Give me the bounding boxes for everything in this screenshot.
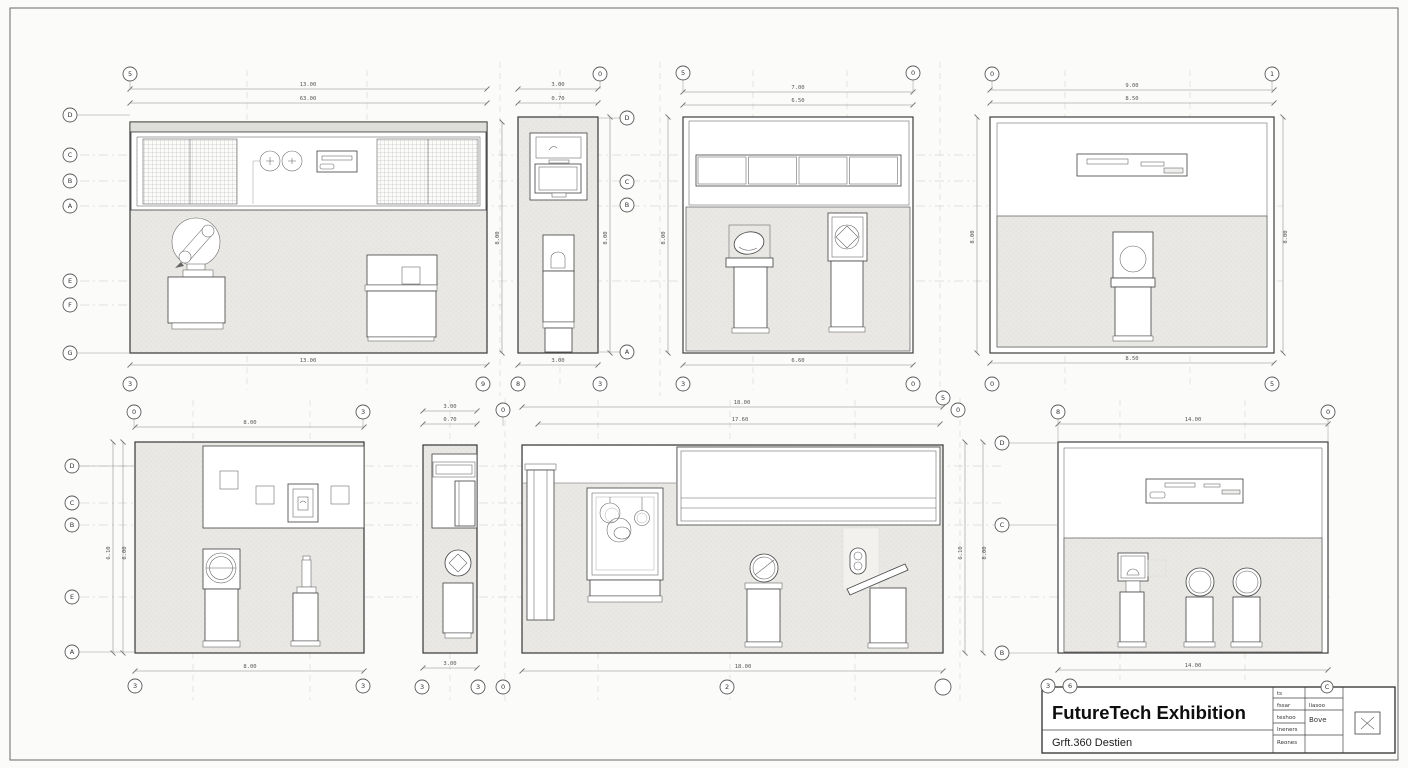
dim-label: 9.00: [1125, 83, 1138, 89]
grid-bubble-label: D: [624, 114, 629, 122]
grid-bubble: 3: [471, 680, 485, 694]
grid-bubble-label: 0: [501, 406, 505, 414]
grid-bubble-label: B: [625, 201, 629, 209]
grid-bubble: 9: [476, 377, 490, 391]
grid-bubble-label: 1: [1270, 70, 1274, 78]
titleblock-cell: Ineners: [1277, 727, 1298, 733]
grid-bubble: 3: [676, 377, 690, 391]
grid-bubble-label: 3: [133, 682, 137, 690]
grid-bubble-label: C: [625, 178, 630, 186]
grid-bubble-label: 5: [681, 69, 685, 77]
dim-label: 3.00: [443, 404, 456, 410]
grid-bubble: 0: [951, 403, 965, 417]
grid-bubble-label: 0: [1326, 408, 1330, 416]
dim-label: 8.00: [243, 664, 256, 670]
titleblock-cell: Reones: [1277, 740, 1297, 746]
elevation-f: 3.00 0.70 3.00 0 3 3 0: [415, 403, 510, 694]
grid-bubble-label: 0: [501, 683, 505, 691]
artwork-wall-inset: [203, 446, 364, 528]
drawing-sheet: 13.00 63.00 13.00 8.00 5 3 9 D C B A E F…: [0, 0, 1408, 768]
grid-bubble-label: 3: [128, 380, 132, 388]
grid-bubble: 5: [123, 67, 137, 89]
dim-label: 3.00: [551, 82, 564, 88]
grid-bubble: 0: [1321, 405, 1335, 442]
dim-label: 6.10: [958, 546, 964, 559]
grid-bubble-label: G: [67, 349, 72, 357]
title-block: FutureTech Exhibition Grft.360 Destien t…: [1042, 687, 1395, 753]
grid-bubble-label: B: [68, 177, 72, 185]
grid-bubble: 5: [676, 66, 690, 92]
grid-bubble-label: C: [1000, 521, 1005, 529]
signage-plate: [1077, 154, 1187, 176]
grid-bubble-label: D: [999, 439, 1004, 447]
dim-label: 13.00: [300, 82, 317, 88]
dim-label: 6.10: [106, 546, 112, 559]
dim-label: 8.00: [603, 231, 609, 244]
titleblock-cell: ts: [1277, 691, 1282, 697]
grid-bubble: 3: [356, 405, 370, 427]
shelf-inset: [432, 454, 477, 528]
elevation-c: 7.00 6.50 6.60 5 0 3 0: [676, 66, 920, 391]
grid-bubble-label: 5: [128, 70, 132, 78]
titleblock-cell: teshoo: [1277, 715, 1296, 721]
grid-bubble-label: 5: [1270, 380, 1274, 388]
grid-bubble-label: 5: [941, 394, 945, 402]
grid-bubble-label: 0: [956, 406, 960, 414]
grid-bubble: 3: [593, 377, 607, 391]
grid-bubble-label: 9: [481, 380, 485, 388]
grid-bubble-label: 3: [361, 408, 365, 416]
grid-bubble: 3: [123, 377, 137, 391]
signage-plate: [317, 151, 357, 172]
lightbox-banner: [677, 447, 940, 525]
display-case-exhibit: [365, 255, 437, 341]
elevation-drawing-canvas: 13.00 63.00 13.00 8.00 5 3 9 D C B A E F…: [0, 0, 1408, 768]
grid-bubble-label: A: [68, 202, 73, 210]
elevation-h: 14.00 14.00 8 0 D C B: [995, 405, 1335, 670]
grid-bubble-label: F: [68, 301, 72, 309]
grid-bubble: 0: [496, 403, 510, 426]
grid-bubble: 5: [1265, 377, 1279, 391]
grid-bubble-label: E: [68, 277, 72, 285]
grid-bubble: 0: [985, 377, 999, 391]
grid-bubble-label: B: [70, 521, 74, 529]
grid-bubble-label: B: [1000, 649, 1004, 657]
dim-label: 8.50: [1125, 96, 1138, 102]
dim-label: 14.00: [1185, 663, 1202, 669]
media-wall-inset: [530, 133, 587, 200]
mesh-panel-right: [377, 139, 478, 204]
grid-bubble-label: 0: [598, 70, 602, 78]
grid-bubble-label: D: [69, 462, 74, 470]
porthole-exhibit-pedestal: [745, 554, 782, 647]
grid-bubble-label: 0: [911, 69, 915, 77]
dim-label: 8.00: [982, 546, 988, 559]
dim-label: 0.70: [551, 96, 564, 102]
dim-label: 13.00: [300, 358, 317, 364]
window-band: [696, 155, 901, 186]
dim-label: 18.00: [735, 664, 752, 670]
medal-exhibit-pedestal: [443, 550, 473, 638]
grid-bubble-label: 8: [1056, 408, 1060, 416]
project-subtitle: Grft.360 Destien: [1052, 737, 1132, 749]
porthole-exhibit-pedestal: [203, 549, 240, 647]
grid-bubble: 3: [1041, 679, 1055, 693]
grid-bubble-label: 3: [1046, 682, 1050, 690]
grid-bubble-label: A: [70, 648, 75, 656]
dim-label: 0.70: [443, 417, 456, 423]
signage-plate: [1146, 479, 1243, 503]
grid-bubble-label: A: [625, 348, 630, 356]
level-bubbles-left: D C B A E F G: [63, 108, 130, 360]
vitrine-pedestal: [543, 235, 574, 352]
dim-label: 3.00: [443, 661, 456, 667]
project-title: FutureTech Exhibition: [1052, 702, 1246, 723]
dim-label: 63.00: [300, 96, 317, 102]
grid-bubble-label: E: [70, 593, 74, 601]
grid-bubble-label: 0: [990, 70, 994, 78]
hanging-exhibit-case: [587, 488, 663, 602]
elevation-b: 3.00 0.70 3.00 8.00 8.00 0 8 3 D C B A: [511, 67, 668, 391]
grid-bubble: 0: [127, 405, 141, 427]
grid-bubble: 1: [1265, 67, 1279, 90]
grid-bubble-label: 0: [990, 380, 994, 388]
grid-bubble: 3: [415, 680, 429, 694]
grid-bubble-label: 0: [132, 408, 136, 416]
dim-label: 8.00: [970, 230, 976, 243]
grid-bubble: 0: [593, 67, 607, 89]
grid-bubble-label: 3: [361, 682, 365, 690]
gem-exhibit-pedestal: [828, 213, 867, 332]
dim-label: 7.00: [791, 85, 804, 91]
dim-label: 6.60: [791, 358, 804, 364]
ring-exhibit-pedestal: [1231, 568, 1262, 647]
grid-bubble-label: 6: [1068, 682, 1072, 690]
dim-label: 8.00: [661, 231, 667, 244]
dim-label: 6.50: [791, 98, 804, 104]
grid-bubble-label: 2: [725, 683, 729, 691]
grid-bubble-label: 3: [598, 380, 602, 388]
grid-bubble-label: C: [1325, 683, 1330, 691]
grid-bubble: 0: [906, 66, 920, 92]
dim-label: 8.00: [1283, 230, 1289, 243]
dim-label: 8.50: [1125, 356, 1138, 362]
grid-bubble-label: C: [68, 151, 73, 159]
mesh-panel-left: [143, 139, 237, 204]
grid-bubble-label: 3: [681, 380, 685, 388]
grid-bubble: 0: [906, 377, 920, 391]
dim-label: 17.60: [732, 417, 749, 423]
pilaster-column: [525, 464, 556, 620]
grid-bubble: C: [1321, 681, 1333, 693]
grid-bubble: 6: [1063, 679, 1077, 693]
ring-exhibit-pedestal: [1184, 568, 1215, 647]
titleblock-cell: fssar: [1277, 703, 1291, 709]
dim-label: 18.00: [734, 400, 751, 406]
grid-bubble: 8: [511, 377, 525, 391]
elevation-e: 8.00 8.00 6.10 6.00 0 3 3 3 D C B E: [65, 405, 370, 693]
dim-label: 6.00: [122, 546, 128, 559]
grid-bubble: 3: [128, 679, 142, 693]
grid-bubble-empty: [935, 679, 951, 695]
grid-bubble-label: D: [67, 111, 72, 119]
grid-bubble: 0: [985, 67, 999, 90]
titleblock-cell: liasoo: [1309, 703, 1326, 709]
grid-bubble: 3: [356, 679, 370, 693]
grid-bubble: 0: [496, 680, 510, 694]
level-bubbles-left: D C B: [995, 436, 1058, 660]
grid-bubble-label: C: [70, 499, 75, 507]
grid-bubble-label: 0: [911, 380, 915, 388]
grid-bubble: 8: [1051, 405, 1065, 442]
dim-label: 14.00: [1185, 417, 1202, 423]
grid-bubble: 5: [936, 391, 950, 405]
elevation-a: 13.00 63.00 13.00 8.00 5 3 9 D C B A E F…: [63, 67, 502, 391]
dim-label: 8.00: [243, 420, 256, 426]
dim-label: 8.00: [495, 231, 501, 244]
titleblock-cell: Bove: [1309, 716, 1327, 724]
grid-bubble-label: 8: [516, 380, 520, 388]
grid-bubble-label: 3: [476, 683, 480, 691]
elevation-d: 9.00 8.50 8.50 8.00 8.00 0 1 0 5: [970, 67, 1289, 391]
sphere-exhibit-pedestal: [1111, 232, 1155, 341]
grid-bubble: 2: [720, 680, 734, 694]
grid-bubble-label: 3: [420, 683, 424, 691]
elevation-g: 18.00 17.60 18.00 6.10 8.00 5 0 2: [522, 391, 988, 695]
dim-label: 3.00: [551, 358, 564, 364]
